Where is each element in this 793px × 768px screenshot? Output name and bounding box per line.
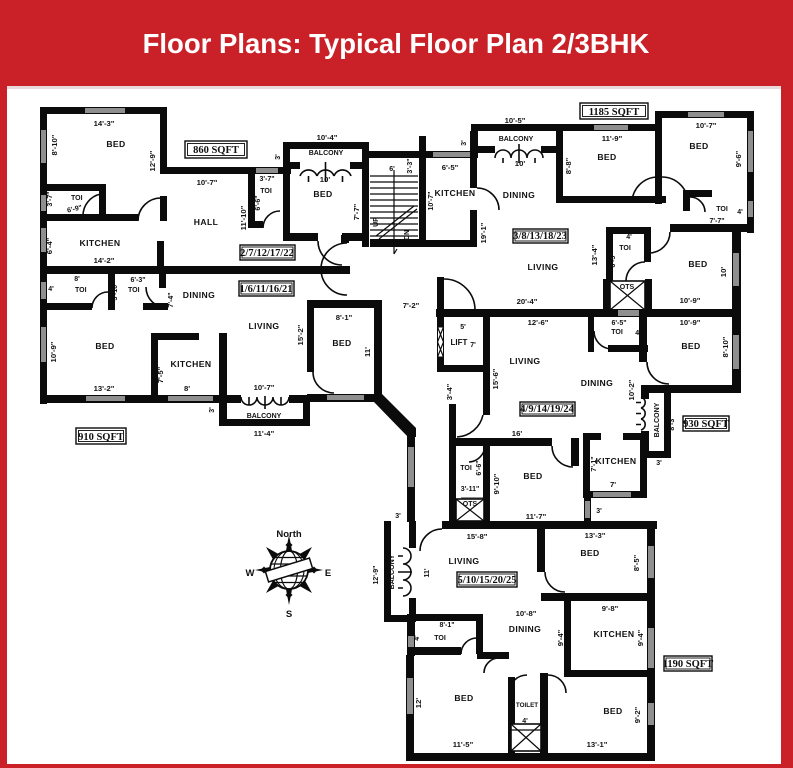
- svg-text:3': 3': [596, 508, 602, 515]
- svg-text:8'-1": 8'-1": [336, 313, 353, 322]
- svg-text:KITCHEN: KITCHEN: [596, 456, 637, 466]
- svg-text:10': 10': [320, 175, 331, 184]
- svg-text:E: E: [325, 568, 331, 579]
- svg-text:4/9/14/19/24: 4/9/14/19/24: [520, 404, 574, 415]
- svg-text:6'-5": 6'-5": [442, 163, 459, 172]
- svg-text:8'-10": 8'-10": [50, 134, 59, 155]
- svg-text:14'-3": 14'-3": [94, 119, 115, 128]
- svg-text:10': 10': [515, 159, 526, 168]
- svg-text:6': 6': [389, 166, 395, 173]
- svg-text:4': 4': [626, 234, 632, 241]
- svg-text:North: North: [276, 529, 302, 540]
- svg-text:8'-5": 8'-5": [632, 554, 641, 571]
- svg-text:10'-7": 10'-7": [254, 383, 275, 392]
- svg-text:11'-10": 11'-10": [239, 205, 248, 230]
- svg-text:TOILET: TOILET: [516, 702, 538, 709]
- svg-text:BALCONY: BALCONY: [654, 402, 661, 437]
- svg-text:BALCONY: BALCONY: [389, 554, 396, 589]
- svg-text:11': 11': [363, 347, 372, 357]
- svg-text:KITCHEN: KITCHEN: [171, 359, 212, 369]
- svg-text:BALCONY: BALCONY: [309, 150, 344, 157]
- svg-text:11'-5": 11'-5": [453, 740, 474, 749]
- svg-text:TOI: TOI: [611, 329, 623, 336]
- svg-text:BED: BED: [688, 259, 707, 269]
- svg-text:6'-5": 6'-5": [610, 252, 617, 267]
- svg-text:19'-1": 19'-1": [479, 222, 488, 243]
- svg-text:10'-9": 10'-9": [49, 341, 58, 362]
- svg-text:BED: BED: [313, 189, 332, 199]
- svg-text:10'-7": 10'-7": [428, 192, 435, 211]
- svg-text:12'-6": 12'-6": [528, 318, 549, 327]
- svg-text:TOI: TOI: [434, 635, 446, 642]
- svg-text:12'-9": 12'-9": [148, 150, 157, 171]
- svg-text:3'-11": 3'-11": [461, 486, 480, 493]
- svg-text:10': 10': [719, 267, 728, 278]
- svg-text:3': 3': [209, 407, 216, 413]
- svg-text:BALCONY: BALCONY: [499, 136, 534, 143]
- svg-text:6'-6": 6'-6": [255, 195, 262, 210]
- svg-text:W: W: [246, 568, 255, 579]
- svg-text:8'-3": 8'-3": [669, 415, 676, 430]
- svg-text:9'-6": 9'-6": [734, 150, 743, 167]
- svg-text:4': 4': [737, 209, 743, 216]
- svg-text:OTS: OTS: [463, 501, 478, 508]
- svg-text:BED: BED: [95, 341, 114, 351]
- svg-text:3'-3": 3'-3": [407, 158, 414, 173]
- svg-text:3'-7": 3'-7": [259, 176, 274, 183]
- svg-text:8': 8': [74, 276, 80, 283]
- svg-text:10'-9": 10'-9": [680, 296, 701, 305]
- svg-text:TOI: TOI: [260, 188, 272, 195]
- svg-text:5/10/15/20/25: 5/10/15/20/25: [458, 575, 517, 586]
- svg-text:7'-7": 7'-7": [352, 203, 361, 220]
- svg-text:3/8/13/18/23: 3/8/13/18/23: [513, 231, 567, 242]
- svg-text:10'-8": 10'-8": [516, 609, 537, 618]
- svg-text:15'-2": 15'-2": [296, 324, 305, 345]
- svg-text:HALL: HALL: [194, 217, 219, 227]
- svg-text:7'-2": 7'-2": [403, 301, 420, 310]
- svg-text:1185 SQFT: 1185 SQFT: [589, 107, 639, 118]
- svg-text:5': 5': [460, 324, 466, 331]
- svg-text:1190 SQFT: 1190 SQFT: [663, 659, 713, 670]
- svg-text:8'-1": 8'-1": [439, 622, 454, 629]
- svg-text:UP: UP: [373, 217, 380, 227]
- svg-text:DINING: DINING: [503, 190, 535, 200]
- svg-text:LIVING: LIVING: [248, 321, 279, 331]
- svg-text:13'-2": 13'-2": [94, 384, 115, 393]
- svg-text:10'-2": 10'-2": [627, 379, 636, 400]
- svg-text:11'-4": 11'-4": [254, 429, 275, 438]
- svg-text:BED: BED: [454, 693, 473, 703]
- svg-text:6'-4": 6'-4": [45, 237, 54, 254]
- svg-text:DN: DN: [404, 230, 411, 240]
- svg-text:BED: BED: [597, 152, 616, 162]
- svg-text:7'-4": 7'-4": [168, 292, 175, 307]
- svg-text:16': 16': [512, 429, 523, 438]
- svg-text:11'-9": 11'-9": [602, 134, 623, 143]
- svg-text:BED: BED: [681, 341, 700, 351]
- svg-text:10'-4": 10'-4": [317, 133, 338, 142]
- svg-text:DINING: DINING: [581, 378, 613, 388]
- svg-text:BED: BED: [332, 338, 351, 348]
- svg-text:930 SQFT: 930 SQFT: [683, 419, 729, 430]
- svg-text:4': 4': [414, 635, 421, 641]
- svg-text:OTS: OTS: [620, 284, 635, 291]
- svg-text:10'-7": 10'-7": [696, 121, 717, 130]
- svg-text:TOI: TOI: [716, 206, 728, 213]
- svg-text:9'-4": 9'-4": [636, 629, 645, 646]
- svg-text:13'-3": 13'-3": [585, 531, 606, 540]
- svg-text:S: S: [286, 609, 292, 620]
- svg-text:LIFT: LIFT: [451, 338, 468, 347]
- svg-text:10'-7": 10'-7": [197, 178, 218, 187]
- svg-text:LIVING: LIVING: [527, 262, 558, 272]
- svg-text:7'-7": 7'-7": [709, 218, 724, 225]
- svg-text:LIVING: LIVING: [448, 556, 479, 566]
- svg-text:7'-1": 7'-1": [591, 456, 598, 471]
- svg-text:BED: BED: [106, 139, 125, 149]
- svg-text:KITCHEN: KITCHEN: [80, 238, 121, 248]
- svg-text:13'-4": 13'-4": [590, 244, 599, 265]
- svg-text:TOI: TOI: [619, 245, 631, 252]
- svg-text:KITCHEN: KITCHEN: [594, 629, 635, 639]
- svg-text:6'-6": 6'-6": [476, 460, 483, 475]
- svg-text:10'-9": 10'-9": [680, 318, 701, 327]
- svg-text:BALCONY: BALCONY: [247, 413, 282, 420]
- svg-text:LIVING: LIVING: [509, 356, 540, 366]
- svg-text:860 SQFT: 860 SQFT: [193, 145, 239, 156]
- svg-text:14'-2": 14'-2": [94, 256, 115, 265]
- svg-text:BED: BED: [580, 548, 599, 558]
- svg-text:7': 7': [470, 342, 476, 349]
- svg-text:6'-3": 6'-3": [130, 277, 145, 284]
- svg-text:12': 12': [414, 698, 423, 709]
- svg-text:9'-2": 9'-2": [633, 706, 642, 723]
- svg-text:11'-7": 11'-7": [526, 512, 547, 521]
- svg-text:8'-10": 8'-10": [721, 336, 730, 357]
- svg-text:7': 7': [610, 480, 616, 489]
- svg-text:9'-4": 9'-4": [556, 629, 565, 646]
- svg-text:3': 3': [275, 154, 282, 160]
- svg-text:11': 11': [424, 568, 431, 577]
- svg-text:1/6/11/16/21: 1/6/11/16/21: [239, 284, 292, 295]
- svg-text:2/7/12/17/22: 2/7/12/17/22: [240, 248, 294, 259]
- svg-text:TOI: TOI: [75, 287, 87, 294]
- svg-text:3': 3': [656, 460, 662, 467]
- svg-text:7'-5": 7'-5": [156, 366, 165, 383]
- svg-text:10'-5": 10'-5": [505, 116, 526, 125]
- svg-text:3': 3': [461, 140, 468, 146]
- svg-text:TOI: TOI: [460, 465, 472, 472]
- svg-text:3'-4": 3'-4": [445, 383, 454, 400]
- svg-text:8'-8": 8'-8": [564, 157, 573, 174]
- svg-text:3'-7": 3'-7": [47, 191, 54, 206]
- svg-text:DINING: DINING: [509, 624, 541, 634]
- svg-text:4': 4': [48, 286, 54, 293]
- svg-text:6'-5": 6'-5": [611, 320, 626, 327]
- svg-text:TOI: TOI: [128, 287, 140, 294]
- svg-text:15'-8": 15'-8": [467, 532, 488, 541]
- svg-text:9'-10": 9'-10": [492, 473, 501, 494]
- svg-text:15'-6": 15'-6": [491, 368, 500, 389]
- svg-text:KITCHEN: KITCHEN: [435, 188, 476, 198]
- svg-text:910 SQFT: 910 SQFT: [78, 432, 124, 443]
- svg-text:8': 8': [184, 384, 190, 393]
- svg-text:DINING: DINING: [183, 290, 215, 300]
- svg-text:BED: BED: [689, 141, 708, 151]
- svg-text:12'-9": 12'-9": [373, 566, 380, 585]
- svg-text:BED: BED: [603, 706, 622, 716]
- svg-text:9'-8": 9'-8": [602, 604, 619, 613]
- svg-text:13'-1": 13'-1": [587, 740, 608, 749]
- svg-text:Floor Plans: Typical Floor Pla: Floor Plans: Typical Floor Plan 2/3BHK: [143, 28, 650, 59]
- svg-text:TOI: TOI: [71, 195, 83, 202]
- svg-text:20'-4": 20'-4": [517, 297, 538, 306]
- svg-text:3': 3': [395, 513, 401, 520]
- svg-text:BED: BED: [523, 471, 542, 481]
